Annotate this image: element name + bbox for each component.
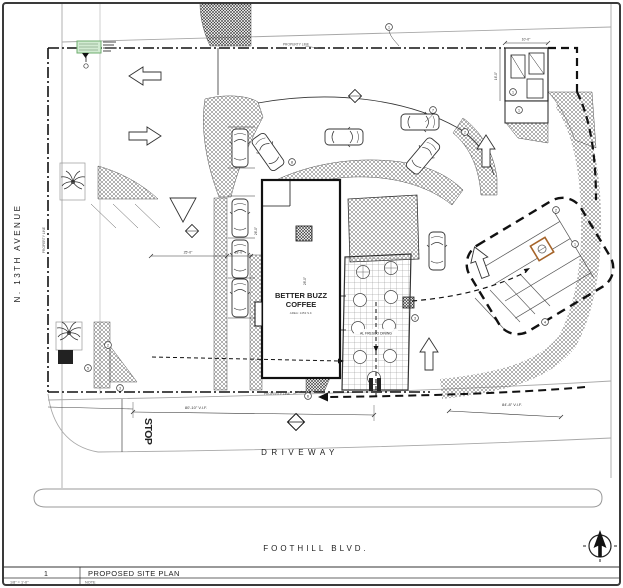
keynote: 8 [291,160,293,164]
property-line-label-bottom: PROPERTY LINE [264,392,291,396]
dim-bottom-left: 80'-10" V.I.F. [185,405,207,410]
detail-marker-icon [349,90,362,103]
detail-marker-icon [186,225,199,238]
dim-aisle: 25'-0" [184,251,193,255]
keynote: 5 [87,366,89,370]
keynote: 1 [512,90,514,94]
driveway-label: DRIVEWAY [261,448,339,457]
keynote: 3 [414,316,416,320]
property-line-label-top: PROPERTY LINE [283,43,310,47]
keynote: 7 [432,108,434,112]
keynote: 6 [307,394,309,398]
transformer-pad [58,350,73,364]
keynote: 2 [107,343,109,347]
keynote: 1 [388,25,390,29]
site-plan-drawing: AL FRESCO DINING BETTER BUZZ COFFEE AREA… [0,0,623,588]
drawing-title: PROPOSED SITE PLAN [88,569,180,578]
utility-symbol [82,53,89,58]
building-name-line2: COFFEE [286,300,316,309]
trash-enclosure [505,48,548,123]
property-line-label-left: PROPERTY LINE [42,226,46,253]
keynote: 3 [119,386,121,390]
street-label-left: N. 13TH AVENUE [13,204,22,303]
tree-planter [56,322,82,350]
keynote: 4 [544,320,546,324]
detail-marker-icon [288,414,305,431]
keynote: 2 [464,130,466,134]
dim-bottom-right: 84'-8" V.I.F. [502,402,522,407]
dim-drive: 26'-0" [254,227,258,235]
dim-enclosure-width: 10'-0" [522,38,531,42]
keynote: 1 [574,242,576,246]
building-name-line1: BETTER BUZZ [275,291,327,300]
site-plan-sheet: AL FRESCO DINING BETTER BUZZ COFFEE AREA… [0,0,623,588]
keynote: 1 [518,108,520,112]
keynote: 2 [555,208,557,212]
drawing-scale: 1/8" = 1'-0" [10,581,29,585]
palm-tree-icon [57,322,81,340]
dim-building-width: 28'-0" [303,277,307,285]
dim-enclosure-depth: 16'-0" [494,72,498,80]
al-fresco-patio: AL FRESCO DINING [342,254,414,391]
boulevard-label: FOOTHILL BLVD. [263,544,369,553]
building-footprint: BETTER BUZZ COFFEE AREA: 1453 S.F. 28'-0… [255,180,346,378]
palm-tree-icon [61,171,85,189]
stop-pavement-marking: STOP [142,418,154,445]
building-area: AREA: 1453 S.F. [290,311,313,315]
drawing-number: 1 [44,571,48,578]
drawing-note: NOTE [85,581,96,585]
dim-stall: 18'-0" [235,251,244,255]
north-arrow-icon [583,530,617,562]
down-arrow [170,198,196,222]
